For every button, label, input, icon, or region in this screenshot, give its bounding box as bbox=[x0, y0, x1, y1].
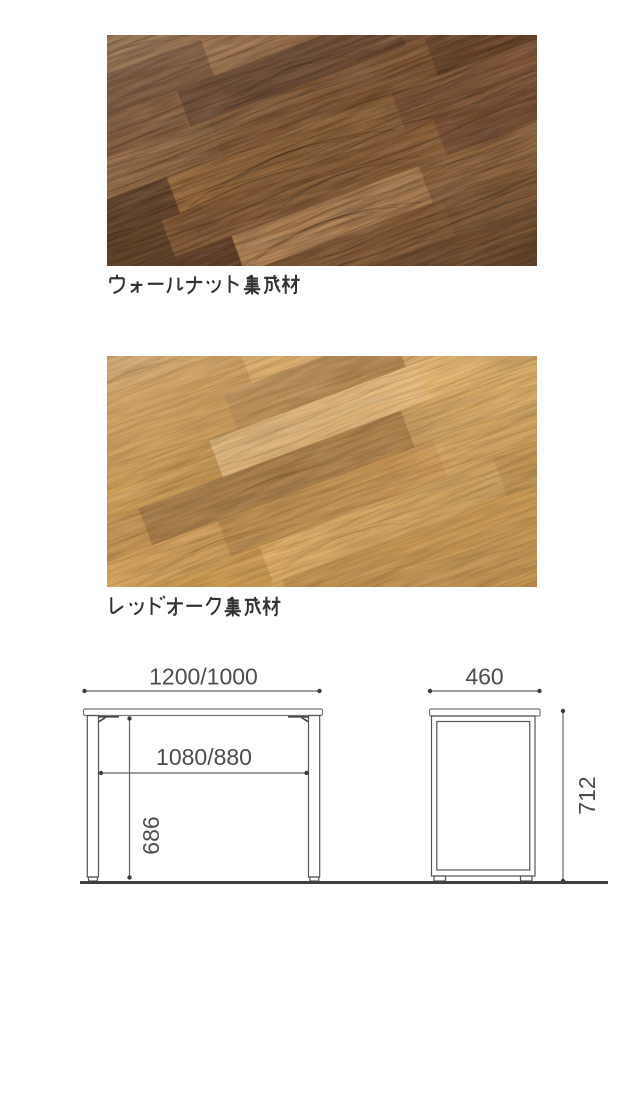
svg-text:1200/1000: 1200/1000 bbox=[149, 664, 258, 690]
svg-text:712: 712 bbox=[574, 776, 600, 814]
svg-text:1080/880: 1080/880 bbox=[156, 744, 252, 770]
svg-text:460: 460 bbox=[465, 664, 503, 690]
svg-text:686: 686 bbox=[138, 816, 164, 854]
